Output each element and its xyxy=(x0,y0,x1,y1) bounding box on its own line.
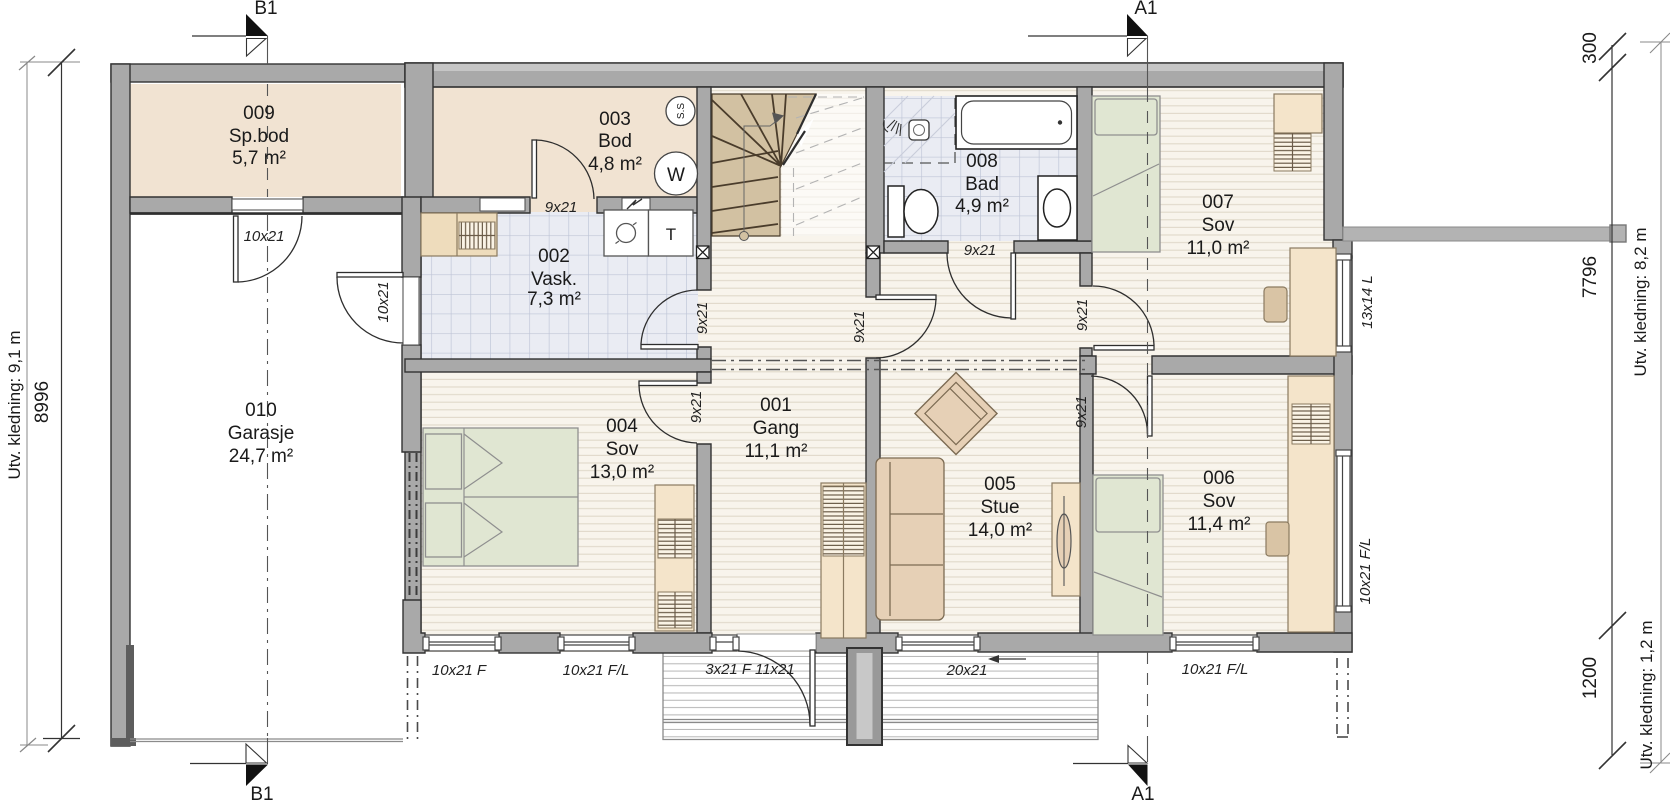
svg-text:10x21: 10x21 xyxy=(375,282,392,323)
svg-text:13x14 L: 13x14 L xyxy=(1359,275,1376,328)
svg-text:7,3 m²: 7,3 m² xyxy=(527,289,581,310)
svg-text:A1: A1 xyxy=(1134,0,1157,19)
svg-text:4,9 m²: 4,9 m² xyxy=(955,196,1009,217)
svg-text:3x21 F 11x21: 3x21 F 11x21 xyxy=(705,661,795,678)
svg-text:7796: 7796 xyxy=(1580,256,1601,298)
svg-text:Bad: Bad xyxy=(965,174,999,195)
svg-text:001: 001 xyxy=(760,395,792,416)
svg-text:300: 300 xyxy=(1580,32,1601,64)
svg-text:005: 005 xyxy=(984,474,1016,495)
svg-text:002: 002 xyxy=(538,246,570,267)
svg-text:Utv. kledning: 1,2 m: Utv. kledning: 1,2 m xyxy=(1637,621,1656,770)
svg-text:009: 009 xyxy=(243,103,275,124)
svg-text:Sov: Sov xyxy=(1202,215,1235,236)
svg-text:004: 004 xyxy=(606,416,638,437)
svg-text:B1: B1 xyxy=(254,0,277,19)
svg-text:B1: B1 xyxy=(250,784,273,800)
svg-text:9x21: 9x21 xyxy=(545,199,578,216)
svg-text:A1: A1 xyxy=(1131,784,1154,800)
svg-text:010: 010 xyxy=(245,400,277,421)
svg-text:9x21: 9x21 xyxy=(1074,299,1091,332)
svg-text:W: W xyxy=(667,165,685,186)
svg-text:9x21: 9x21 xyxy=(688,391,705,424)
svg-text:10x21 F/L: 10x21 F/L xyxy=(563,662,630,679)
svg-text:14,0 m²: 14,0 m² xyxy=(968,520,1032,541)
svg-text:Gang: Gang xyxy=(753,418,799,439)
svg-text:Utv. kledning: 8,2 m: Utv. kledning: 8,2 m xyxy=(1631,228,1650,377)
svg-text:008: 008 xyxy=(966,151,998,172)
svg-text:11,4 m²: 11,4 m² xyxy=(1187,514,1250,535)
svg-text:007: 007 xyxy=(1202,192,1234,213)
svg-text:003: 003 xyxy=(599,109,631,130)
svg-text:T: T xyxy=(666,225,676,244)
svg-text:10x21 F: 10x21 F xyxy=(432,662,487,679)
svg-text:20x21: 20x21 xyxy=(946,662,988,679)
svg-text:8996: 8996 xyxy=(32,381,53,423)
svg-text:4,8 m²: 4,8 m² xyxy=(588,154,642,175)
svg-text:9x21: 9x21 xyxy=(964,242,997,259)
svg-text:S.S: S.S xyxy=(676,103,687,119)
svg-text:11,0 m²: 11,0 m² xyxy=(1186,238,1249,259)
svg-text:Stue: Stue xyxy=(980,497,1019,518)
svg-text:10x21 F/L: 10x21 F/L xyxy=(1357,538,1374,605)
svg-text:5,7 m²: 5,7 m² xyxy=(232,148,286,169)
svg-text:Utv. kledning: 9,1 m: Utv. kledning: 9,1 m xyxy=(5,331,24,480)
svg-text:Vask.: Vask. xyxy=(531,269,577,290)
svg-text:11,1 m²: 11,1 m² xyxy=(744,441,807,462)
svg-text:10x21: 10x21 xyxy=(244,228,285,245)
svg-text:9x21: 9x21 xyxy=(694,302,711,335)
svg-text:1200: 1200 xyxy=(1580,657,1601,699)
svg-text:10x21 F/L: 10x21 F/L xyxy=(1182,661,1249,678)
svg-text:Sp.bod: Sp.bod xyxy=(229,126,289,147)
svg-text:Sov: Sov xyxy=(1203,491,1236,512)
svg-text:9x21: 9x21 xyxy=(851,311,868,344)
svg-text:24,7 m²: 24,7 m² xyxy=(229,446,293,467)
svg-text:9x21: 9x21 xyxy=(1073,396,1090,429)
svg-text:Bod: Bod xyxy=(598,131,632,152)
svg-text:Sov: Sov xyxy=(606,439,639,460)
svg-text:13,0 m²: 13,0 m² xyxy=(590,462,654,483)
svg-text:006: 006 xyxy=(1203,468,1235,489)
svg-text:Garasje: Garasje xyxy=(228,423,295,444)
